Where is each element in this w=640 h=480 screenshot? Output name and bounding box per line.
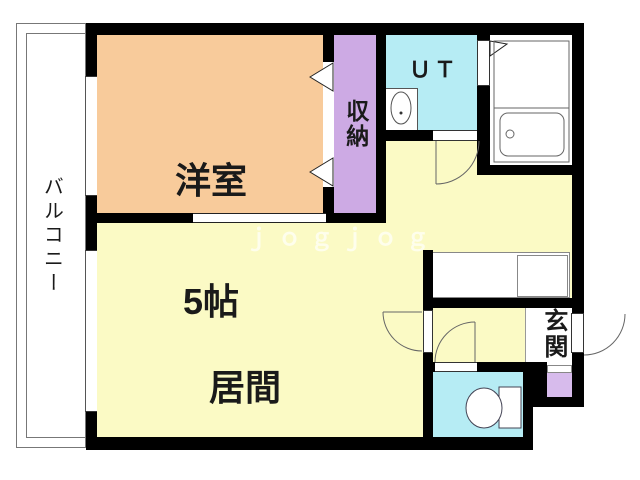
outside-area [533,407,640,480]
wall-kitchen-bottom [423,298,572,308]
entrance-step [547,365,572,373]
balcony-label: バルコニー [40,176,62,296]
toilet-floor [433,372,523,438]
bathroom-door-opening [477,40,490,86]
closet-opening [323,62,334,187]
stove-unit [517,255,568,297]
watermark: ｊｏｇｊｏｇ [246,218,438,252]
floorplan: 洋室 5帖 居間 10.7帖 収納 ＵＴ 玄関 バルコニー ｊｏｇｊｏｇ [0,0,640,480]
entrance-door-leaf [571,313,584,353]
entrance-label: 玄関 [539,308,566,360]
washbasin-box [385,88,418,131]
hall-door-opening [423,310,433,353]
wall-storage-right [376,35,386,213]
living-room-label: 居間 10.7帖 [209,287,315,480]
wall-ut-bottom [376,130,434,141]
wall-entrance-bottom [533,397,584,407]
window-living [85,250,97,412]
bathroom-floor [490,35,572,165]
living-room-name: 居間 [209,368,315,408]
ut-door-opening [433,130,477,141]
storage-label: 収納 [342,99,368,149]
western-room-name: 洋室 [136,161,286,201]
wall-hall-bottom-left [423,362,435,372]
wall-bathroom-bottom [477,165,584,175]
wall-toilet-right [523,362,533,450]
ut-label: ＵＴ [409,58,459,83]
wall-top [86,23,584,35]
shoebox [547,372,572,397]
entrance-door-swing [584,314,625,355]
toilet-door-opening [435,362,477,372]
window-western [85,76,97,196]
